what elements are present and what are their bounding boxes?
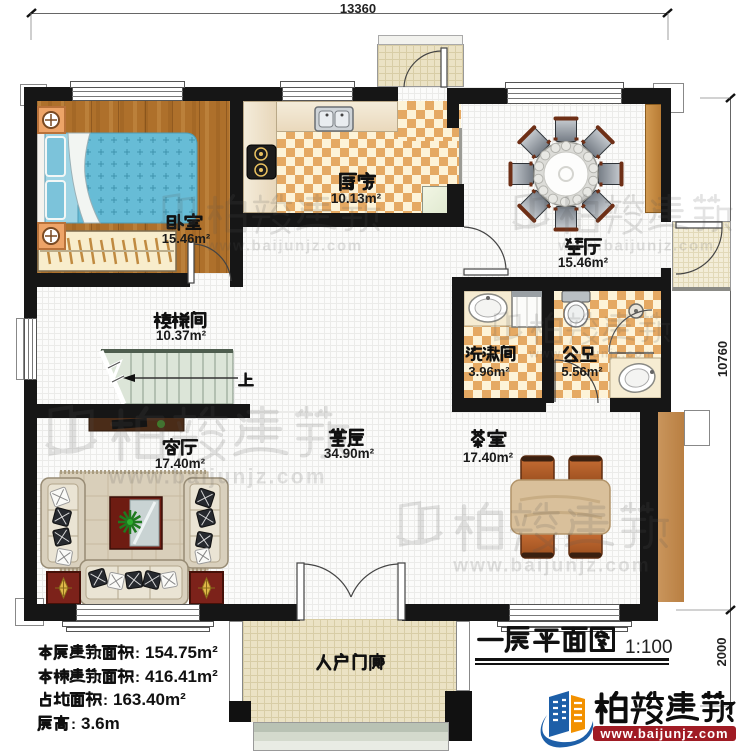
svg-text:17.40m²: 17.40m²: [463, 450, 514, 465]
svg-text:5.56m²: 5.56m²: [561, 364, 603, 379]
svg-text:34.90m²: 34.90m²: [324, 446, 375, 461]
svg-text:15.46m²: 15.46m²: [558, 255, 609, 270]
svg-text:www.baijunjz.com: www.baijunjz.com: [528, 347, 655, 361]
svg-text:3.96m²: 3.96m²: [468, 364, 510, 379]
svg-text:10.13m²: 10.13m²: [331, 191, 382, 206]
svg-text:10.37m²: 10.37m²: [156, 328, 207, 343]
svg-text:15.46m²: 15.46m²: [162, 231, 211, 246]
svg-text:www.baijunjz.com: www.baijunjz.com: [557, 237, 715, 254]
svg-text:www.baijunjz.com: www.baijunjz.com: [205, 237, 363, 254]
svg-text:www.baijunjz.com: www.baijunjz.com: [452, 556, 651, 577]
svg-text:www.baijunjz.com: www.baijunjz.com: [108, 466, 327, 489]
